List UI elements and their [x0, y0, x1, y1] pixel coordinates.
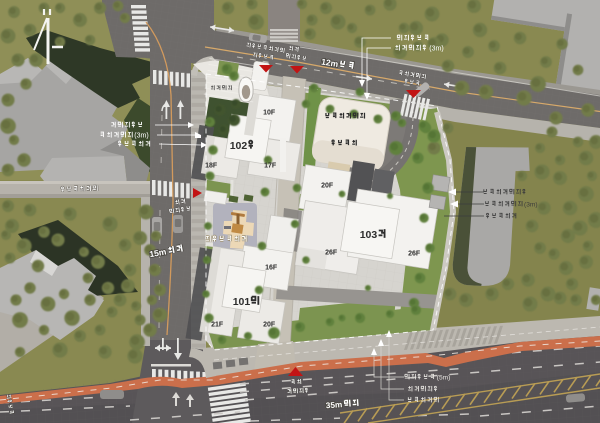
- svg-text:21F: 21F: [211, 322, 224, 329]
- svg-text:20F: 20F: [263, 322, 276, 329]
- svg-text:26F: 26F: [325, 250, 338, 257]
- svg-text:(3m): (3m): [134, 133, 148, 140]
- svg-text:16F: 16F: [265, 265, 278, 272]
- svg-text:102: 102: [230, 140, 248, 152]
- svg-text:10F: 10F: [263, 110, 276, 117]
- svg-text:(5m): (5m): [437, 375, 451, 382]
- svg-text:20F: 20F: [321, 183, 334, 190]
- svg-text:17F: 17F: [264, 163, 277, 170]
- svg-text:18F: 18F: [205, 163, 218, 170]
- svg-text:35m: 35m: [326, 400, 343, 410]
- svg-text:26F: 26F: [408, 251, 421, 258]
- svg-text:101: 101: [233, 296, 251, 308]
- svg-text:(3m): (3m): [524, 202, 538, 209]
- svg-text:(3m): (3m): [429, 46, 443, 53]
- svg-text:103: 103: [360, 229, 378, 241]
